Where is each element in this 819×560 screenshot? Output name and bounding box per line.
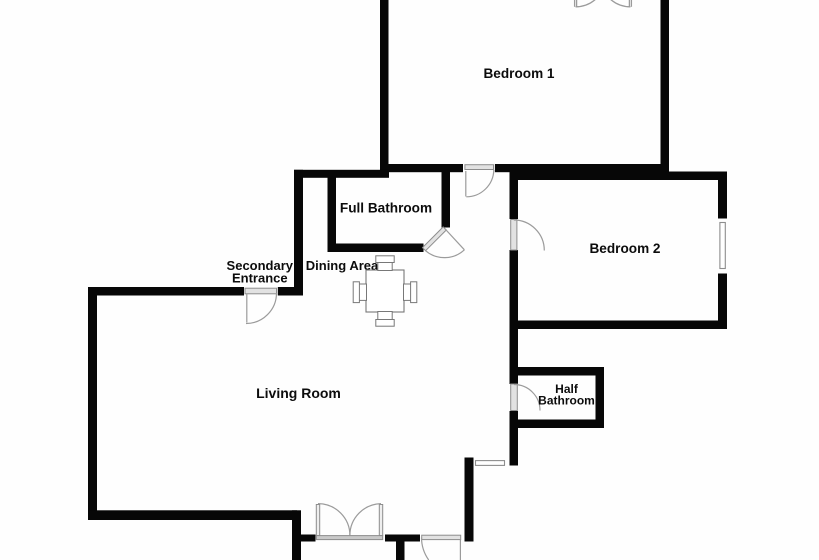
svg-text:Bedroom 1: Bedroom 1 [483, 66, 554, 81]
svg-text:Full Bathroom: Full Bathroom [340, 201, 432, 216]
svg-text:Entrance: Entrance [232, 271, 288, 286]
svg-text:Bedroom 2: Bedroom 2 [589, 241, 660, 256]
svg-text:Bathroom: Bathroom [538, 394, 595, 408]
svg-text:Living Room: Living Room [256, 385, 341, 401]
